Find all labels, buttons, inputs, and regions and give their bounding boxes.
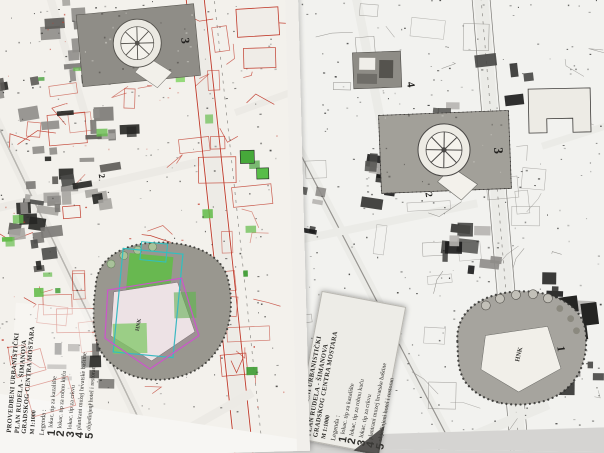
map-speckle [366,237,367,238]
map-speckle [530,4,531,5]
map-speckle [146,149,147,150]
map-speckle [27,151,29,152]
building-block [474,226,490,236]
map-speckle [600,304,602,306]
map-speckle [160,393,162,394]
map-speckle [179,181,180,182]
building-block [80,158,95,162]
map-speckle [102,105,103,106]
map-speckle [268,46,270,47]
map-speckle [194,165,195,166]
map-speckle [276,365,278,366]
map-speckle [76,290,78,291]
map-speckle [402,202,404,203]
map-speckle [259,114,261,115]
map-speckle [431,0,433,1]
map-speckle [79,68,81,69]
map-speckle [570,73,572,74]
map-speckle [353,244,355,245]
map-speckle [39,41,41,42]
map-speckle [165,239,166,240]
map-scan-collage: 3 HNK 2 [0,0,604,453]
map-speckle [257,302,259,304]
right-map-scan: 4 3 2 [288,0,604,452]
plaza-speckle [187,61,189,62]
map-speckle [547,214,548,215]
map-speckle [337,186,339,188]
building-block [45,157,51,162]
map-speckle [357,97,359,98]
map-speckle [321,448,322,449]
map-speckle [575,69,577,71]
map-speckle [283,391,284,393]
outlined-block [236,7,280,38]
vegetation-patch [73,67,82,71]
map-speckle [80,179,82,180]
museum-wing [379,60,393,78]
map-speckle [23,80,24,81]
map-speckle [241,70,243,71]
map-speckle [95,7,97,9]
map-speckle [33,237,34,238]
plaza-speckle [191,14,193,16]
map-speckle [49,273,51,274]
map-speckle [52,198,53,199]
map-speckle [3,277,4,278]
plaza-speckle [404,164,405,165]
map-speckle [97,223,99,224]
map-speckle [431,94,433,96]
map-speckle [476,281,478,282]
map-speckle [557,228,558,229]
map-speckle [590,171,591,172]
map-speckle [437,70,439,71]
map-speckle [596,0,597,1]
building-block [315,187,326,198]
map-speckle [481,69,483,70]
map-speckle [468,49,470,50]
plaza-speckle [109,38,111,40]
map-speckle [445,46,447,47]
map-speckle [567,225,569,227]
map-speckle [421,200,423,201]
map-speckle [433,79,435,81]
plaza-speckle [385,117,386,119]
map-speckle [52,23,53,24]
map-speckle [256,237,257,238]
plaza-speckle [112,27,113,29]
plaza-speckle [101,13,103,15]
map-speckle [257,291,259,292]
map-speckle [586,363,588,364]
map-speckle [34,13,35,14]
map-speckle [232,82,234,83]
map-speckle [550,58,551,59]
map-speckle [395,93,396,94]
map-speckle [428,105,430,106]
map-speckle [472,261,474,262]
map-speckle [213,206,214,207]
map-speckle [416,293,418,294]
map-speckle [22,119,23,120]
map-speckle [30,42,31,43]
map-speckle [16,150,18,151]
map-speckle [81,289,82,291]
map-speckle [325,131,326,132]
map-speckle [408,353,409,354]
map-speckle [207,11,209,12]
map-speckle [26,217,28,218]
map-speckle [14,296,15,297]
map-speckle [63,151,64,153]
map-speckle [388,98,389,99]
map-speckle [230,324,231,325]
map-speckle [421,412,422,413]
map-speckle [599,153,601,155]
map-speckle [570,69,571,70]
map-speckle [62,22,64,23]
map-speckle [267,274,269,276]
map-speckle [344,288,345,289]
map-speckle [202,216,204,218]
map-speckle [581,175,583,176]
map-speckle [503,59,504,60]
map-speckle [452,420,454,422]
map-speckle [439,0,441,1]
map-speckle [521,171,523,172]
map-speckle [598,256,600,257]
map-speckle [152,1,153,2]
plaza-speckle [491,134,493,135]
map-speckle [444,327,446,328]
map-speckle [99,180,100,181]
map-speckle [227,13,229,14]
building-block [30,239,38,248]
map-speckle [3,363,4,364]
map-speckle [219,27,220,28]
plaza-speckle [442,115,444,116]
map-speckle [472,90,474,91]
map-speckle [433,202,435,204]
map-speckle [72,21,74,22]
plaza-speckle [177,50,178,51]
map-speckle [147,181,148,182]
building-block [120,124,140,134]
map-speckle [65,56,67,57]
plaza-speckle [455,117,457,118]
map-speckle [315,13,317,15]
map-speckle [254,346,255,348]
map-speckle [104,6,106,7]
tree-icon [495,294,504,303]
map-speckle [510,5,512,6]
map-speckle [260,236,261,237]
plaza-speckle [473,161,474,162]
map-speckle [580,285,582,286]
map-speckle [353,159,355,160]
map-speckle [564,148,566,149]
map-speckle [310,256,312,257]
map-speckle [372,148,374,149]
map-speckle [58,99,59,100]
map-speckle [540,289,541,290]
plaza-speckle [386,148,387,149]
map-speckle [60,174,61,176]
map-speckle [220,407,222,408]
map-speckle [209,93,211,94]
museum-court [359,58,375,70]
map-speckle [589,12,591,13]
map-speckle [3,382,4,383]
plaza-speckle [161,22,162,23]
map-speckle [169,88,171,89]
map-speckle [343,86,345,87]
map-speckle [497,242,499,244]
map-speckle [439,340,441,341]
map-speckle [163,97,165,98]
map-speckle [470,268,471,269]
map-speckle [444,207,446,208]
map-speckle [560,210,561,212]
map-speckle [538,178,540,179]
map-speckle [215,146,217,148]
building-block [449,235,459,246]
map-speckle [46,11,48,12]
tree-icon [511,290,520,299]
map-speckle [413,108,415,109]
map-speckle [522,73,523,74]
vegetation-patch [243,270,248,276]
map-speckle [144,226,146,227]
map-speckle [477,39,478,40]
map-speckle [314,279,316,280]
map-speckle [447,90,449,91]
map-speckle [598,264,600,265]
map-speckle [234,88,236,89]
plaza-speckle [122,68,124,70]
rotunda-icon [113,19,162,68]
map-speckle [274,374,275,375]
map-speckle [275,158,276,159]
map-speckle [276,135,277,136]
map-speckle [268,185,269,186]
map-speckle [143,5,145,6]
building-block [52,176,58,184]
map-speckle [98,256,99,257]
map-speckle [431,66,432,67]
green-square [240,150,254,163]
map-speckle [172,167,173,168]
map-speckle [174,238,175,239]
map-speckle [181,240,183,241]
map-speckle [573,419,575,420]
plaza-speckle [388,176,390,178]
map-speckle [367,185,369,186]
map-speckle [488,281,490,282]
map-speckle [318,294,319,296]
map-speckle [396,390,398,391]
map-speckle [196,221,197,222]
building-block [93,109,100,118]
map-speckle [115,7,117,8]
plaza-speckle [126,13,127,14]
map-speckle [229,139,231,140]
map-speckle [519,187,521,189]
map-speckle [526,170,528,172]
map-speckle [129,238,131,239]
map-speckle [428,53,429,55]
plaza-speckle [85,51,86,53]
green-square [257,168,269,179]
map-speckle [137,148,139,150]
map-speckle [317,236,318,237]
map-speckle [160,100,161,101]
map-speckle [239,181,240,182]
map-speckle [366,178,368,180]
rotunda-icon [418,124,471,177]
museum-wing [357,74,377,84]
map-speckle [6,321,8,322]
map-speckle [563,145,565,146]
map-speckle [444,213,445,214]
map-speckle [327,109,329,110]
map-speckle [2,199,4,200]
building-block [523,72,534,81]
map-speckle [131,92,133,93]
building-block [41,120,59,130]
map-speckle [50,49,51,50]
plaza-speckle [190,46,192,47]
map-speckle [413,388,415,389]
map-speckle [221,357,223,358]
map-speckle [316,187,318,189]
map-speckle [590,54,592,55]
map-speckle [196,171,198,172]
map-speckle [497,247,499,248]
map-speckle [156,383,158,384]
map-speckle [461,87,463,88]
map-speckle [561,159,562,160]
map-speckle [261,229,262,230]
map-speckle [458,224,460,225]
vegetation-patch [96,129,107,137]
map-speckle [61,111,63,112]
tree-icon [120,252,128,260]
building-block [32,146,44,154]
map-speckle [398,5,400,6]
map-speckle [418,355,419,356]
outlined-block [243,48,276,69]
map-speckle [239,253,241,255]
map-speckle [75,267,77,268]
plaza-speckle [500,124,502,125]
building-block [90,120,97,134]
map-speckle [443,250,444,251]
map-speckle [534,185,536,186]
building-block [593,373,604,380]
map-speckle [400,271,402,272]
map-speckle [18,42,20,44]
map-speckle [405,277,406,278]
map-speckle [592,420,594,421]
map-speckle [270,39,271,40]
map-speckle [429,271,430,272]
map-speckle [337,62,339,63]
map-speckle [565,396,566,397]
map-speckle [515,227,516,229]
map-speckle [383,90,384,91]
building-block [41,247,57,261]
map-speckle [377,257,378,259]
map-speckle [233,31,235,32]
map-speckle [582,378,583,379]
map-speckle [512,245,514,246]
map-speckle [397,292,399,294]
map-speckle [449,68,451,69]
map-speckle [343,3,345,4]
map-speckle [66,103,67,104]
plaza-speckle [482,145,483,146]
map-speckle [261,304,263,305]
map-speckle [518,7,519,8]
map-speckle [453,319,455,320]
map-speckle [579,5,580,6]
map-speckle [479,277,480,278]
map-speckle [346,107,348,109]
map-speckle [108,387,110,388]
map-speckle [60,177,62,178]
map-speckle [321,196,323,197]
map-speckle [257,126,259,128]
map-speckle [225,210,226,211]
map-speckle [596,387,598,389]
map-speckle [193,149,194,150]
building-block [542,272,556,284]
map-speckle [18,120,19,121]
map-speckle [269,189,270,190]
map-speckle [74,123,76,124]
map-speckle [527,407,528,408]
map-speckle [32,87,34,88]
map-speckle [522,237,524,238]
plaza-speckle [428,184,430,185]
map-speckle [100,380,102,381]
building-block [457,223,473,237]
map-speckle [496,108,498,109]
map-speckle [236,6,237,7]
map-speckle [412,344,413,345]
map-speckle [360,102,362,103]
tree-icon [528,290,537,299]
map-speckle [227,395,228,396]
map-speckle [85,120,86,122]
map-speckle [438,404,439,406]
vegetation-patch [202,209,213,218]
map-speckle [453,310,455,311]
map-speckle [64,14,65,16]
map-speckle [2,323,4,324]
park-block: HNK 1 [456,289,587,406]
map-speckle [39,86,41,88]
map-speckle [400,49,402,50]
map-speckle [472,428,474,429]
map-speckle [433,241,434,242]
map-speckle [322,53,323,54]
map-speckle [555,423,557,424]
map-speckle [356,115,358,116]
map-speckle [441,80,442,81]
map-speckle [401,29,402,31]
